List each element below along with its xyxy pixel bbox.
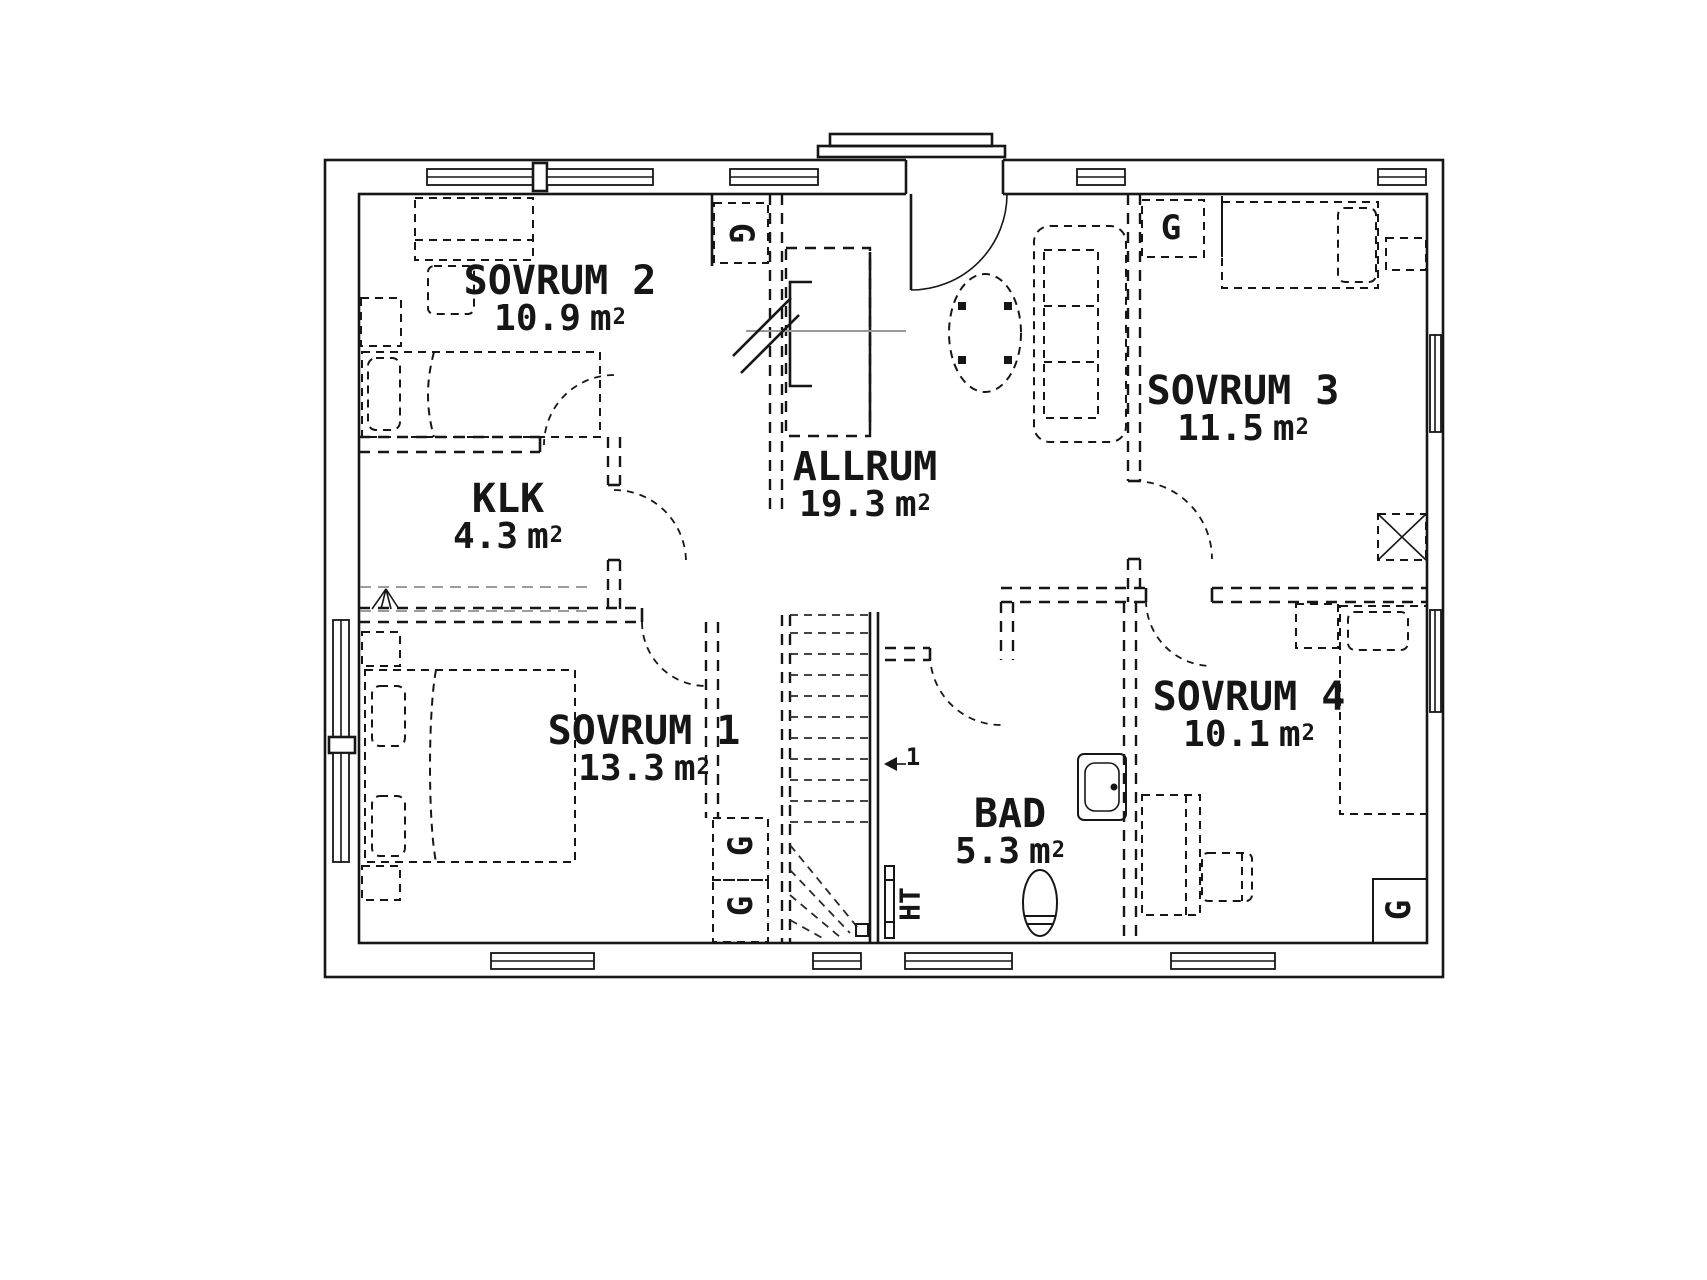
window-top-allrum-right [1077, 169, 1125, 185]
window-top-sovrum2-right [547, 169, 653, 185]
window-mullion [329, 737, 355, 753]
towel-radiator-label: HT [894, 887, 927, 921]
window-right-sovrum3 [1430, 335, 1441, 432]
room-label-sovrum2: SOVRUM 2 10.9m2 [464, 262, 657, 337]
room-name: SOVRUM 4 [1153, 678, 1346, 716]
room-name: KLK [453, 480, 563, 518]
stair-step-number: 1 [906, 743, 920, 771]
room-label-bad: BAD 5.3m2 [955, 795, 1065, 870]
room-area: 10.1m2 [1153, 716, 1346, 753]
window-top-allrum-left [730, 169, 818, 185]
window-right-sovrum4 [1430, 610, 1441, 712]
floor-plan-page: SOVRUM 2 10.9m2 KLK 4.3m2 ALLRUM 19.3m2 … [0, 0, 1707, 1280]
wardrobe-label-sovrum2: G [721, 223, 761, 243]
room-name: SOVRUM 1 [548, 712, 741, 750]
room-name: SOVRUM 2 [464, 262, 657, 300]
room-name: SOVRUM 3 [1147, 372, 1340, 410]
room-label-sovrum1: SOVRUM 1 13.3m2 [548, 712, 741, 787]
wardrobe-label-hall-upper: G [721, 836, 761, 856]
room-area: 19.3m2 [793, 486, 938, 523]
window-top-sovrum3 [1378, 169, 1426, 185]
room-area: 11.5m2 [1147, 410, 1340, 447]
room-area: 5.3m2 [955, 833, 1065, 870]
window-top-sovrum2-left [427, 169, 533, 185]
room-label-allrum: ALLRUM 19.3m2 [793, 448, 938, 523]
wardrobe-label-sovrum4: G [1379, 900, 1419, 920]
floor-plan-drawing [0, 0, 1707, 1280]
window-bottom-sovrum4 [1171, 953, 1275, 969]
window-left-sovrum1-lower [333, 753, 349, 862]
room-area: 13.3m2 [548, 750, 741, 787]
room-label-sovrum4: SOVRUM 4 10.1m2 [1153, 678, 1346, 753]
wardrobe-label-sovrum3: G [1161, 208, 1181, 248]
window-bottom-sovrum1 [491, 953, 594, 969]
window-left-sovrum1-upper [333, 620, 349, 737]
window-mullion [533, 163, 547, 191]
room-area: 10.9m2 [464, 300, 657, 337]
entrance-canopy [818, 134, 1005, 157]
window-bottom-stair [813, 953, 861, 969]
room-label-sovrum3: SOVRUM 3 11.5m2 [1147, 372, 1340, 447]
window-bottom-bad [905, 953, 1012, 969]
wardrobe-label-hall-lower: G [721, 896, 761, 916]
room-name: ALLRUM [793, 448, 938, 486]
room-name: BAD [955, 795, 1065, 833]
room-area: 4.3m2 [453, 518, 563, 555]
room-label-klk: KLK 4.3m2 [453, 480, 563, 555]
